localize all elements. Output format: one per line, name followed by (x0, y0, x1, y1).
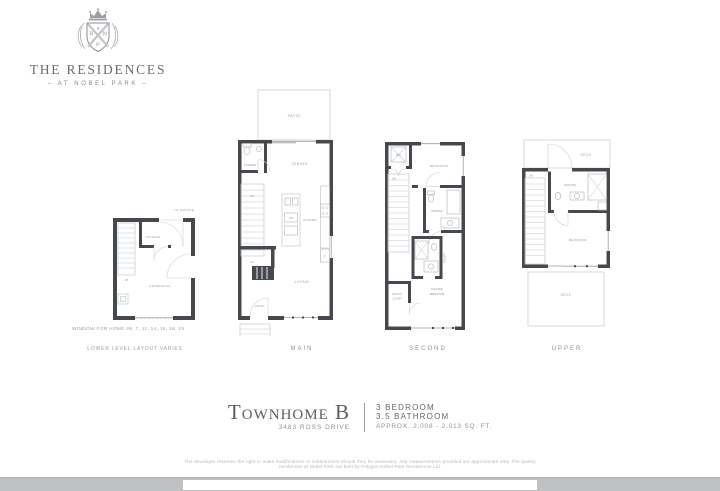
room-label-deck-top: DECK (581, 153, 592, 157)
room-label-kitchen: KITCHEN (303, 218, 316, 222)
brand-tagline: – AT NOBEL PARK – (18, 81, 178, 87)
room-label-dining: DINING (292, 162, 308, 166)
disclaimer-text: The developer reserves the right to make… (180, 459, 540, 469)
plan-label-upper: UPPER (527, 346, 607, 352)
crown-icon (89, 8, 107, 20)
plan-label-second: SECOND (388, 346, 468, 352)
room-label-master-1: MASTER (431, 287, 443, 291)
room-label-dn: DN (392, 177, 396, 181)
floorplan-second: W/D BEDROOM DN ENSUITE ENSUITE (383, 138, 467, 338)
room-label-up: UP (125, 279, 129, 282)
floorplan-upper: DECK DN ENSUITE BEDROOM (518, 136, 614, 332)
spec-bedrooms: 3 BEDROOM (376, 403, 576, 412)
plan-label-main: MAIN (262, 346, 342, 352)
monogram-p: P (96, 43, 100, 49)
brand-name: THE RESIDENCES (18, 62, 178, 78)
townhome-address: 3483 ROSS DRIVE (180, 424, 350, 431)
room-label-ensuite: ENSUITE (564, 183, 576, 187)
room-label-living: LIVING (295, 280, 310, 284)
spec-area: APPROX. 2,008 - 2,013 SQ. FT. (376, 423, 576, 430)
room-label-dn: DN (529, 174, 533, 178)
room-label-walkin-2: CLOSET (392, 298, 402, 301)
monogram-r: R (89, 32, 93, 38)
shield-crown-glyph: ♛ (96, 27, 99, 31)
room-label-storage: STORAGE (146, 235, 161, 239)
monogram-n: N (103, 32, 107, 38)
townhome-title: Townhome B (180, 400, 350, 425)
room-label-ensuite: ENSUITE (431, 209, 443, 213)
next-page-top (183, 480, 537, 490)
room-label-bedroom: BEDROOM (569, 238, 587, 242)
room-label-deck-bottom: DECK (561, 293, 572, 297)
appliance-label-dw: DW (289, 217, 294, 220)
spec-bathrooms: 3.5 BATHROOM (376, 412, 576, 421)
room-label-recreation: RECREATION (149, 284, 170, 288)
shield-icon: ♛ R N P (87, 23, 109, 52)
room-label-bedroom: BEDROOM (430, 164, 448, 168)
floorplan-main: PATIO POWDER DINING DN UP DW (236, 86, 338, 336)
room-label-ensuite2: ENSUITE (444, 252, 447, 263)
room-label-up: UP (250, 260, 254, 264)
room-label-dn: DN (250, 194, 254, 198)
floorplan-lower-level: TO GARAGE UP STORAGE RECREATION (96, 198, 208, 324)
room-label-master-2: BEDROOM (430, 292, 445, 296)
note-lower-level-varies: LOWER LEVEL LAYOUT VARIES (65, 346, 205, 352)
room-label-patio: PATIO (288, 114, 301, 118)
spec-list: 3 BEDROOM 3.5 BATHROOM APPROX. 2,008 - 2… (376, 403, 576, 430)
room-label-entry: ENTRY (255, 304, 265, 308)
room-label-powder: POWDER (244, 163, 256, 167)
room-label-to-garage: TO GARAGE (174, 208, 194, 212)
room-label-walkin-1: WALK-IN (392, 293, 402, 296)
room-label-wd: W/D (396, 153, 401, 157)
logo-crest: ♛ R N P (68, 8, 128, 60)
title-divider (364, 403, 365, 432)
